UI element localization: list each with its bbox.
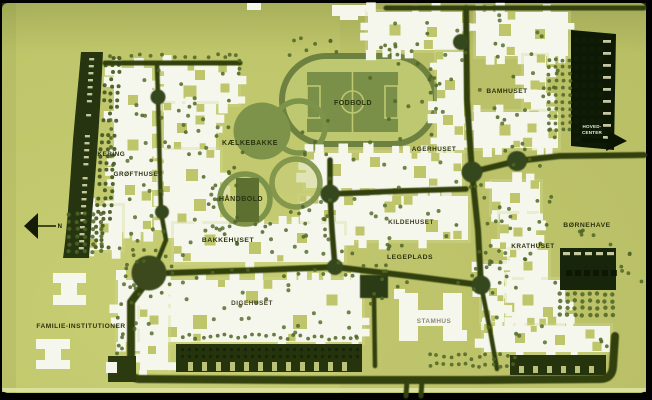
svg-text:N: N <box>58 224 63 230</box>
svg-text:FODBOLD: FODBOLD <box>334 100 372 107</box>
svg-text:HOVED-: HOVED- <box>582 124 601 129</box>
svg-text:GRØFTHUSET: GRØFTHUSET <box>113 171 162 178</box>
svg-text:KILDEHUSET: KILDEHUSET <box>388 219 434 226</box>
svg-text:HÅNDBOLD: HÅNDBOLD <box>219 194 263 203</box>
svg-text:FAMILIE-INSTITUTIONER: FAMILIE-INSTITUTIONER <box>36 323 125 330</box>
svg-text:KRATHUSET: KRATHUSET <box>511 243 554 250</box>
svg-text:AGERHUSET: AGERHUSET <box>412 146 457 153</box>
svg-text:BØRNEHAVE: BØRNEHAVE <box>563 222 610 229</box>
svg-text:LEGEPLADS: LEGEPLADS <box>387 254 433 261</box>
svg-text:CENTER: CENTER <box>582 130 603 135</box>
svg-text:KÆLKEBAKKE: KÆLKEBAKKE <box>222 140 278 147</box>
svg-text:BAKKEHUSET: BAKKEHUSET <box>202 237 255 244</box>
svg-text:STAMHUS: STAMHUS <box>417 318 452 325</box>
svg-text:BAMHUSET: BAMHUSET <box>486 88 527 95</box>
svg-text:DIGEHUSET: DIGEHUSET <box>231 300 273 307</box>
svg-text:PARKERING: PARKERING <box>83 151 125 158</box>
